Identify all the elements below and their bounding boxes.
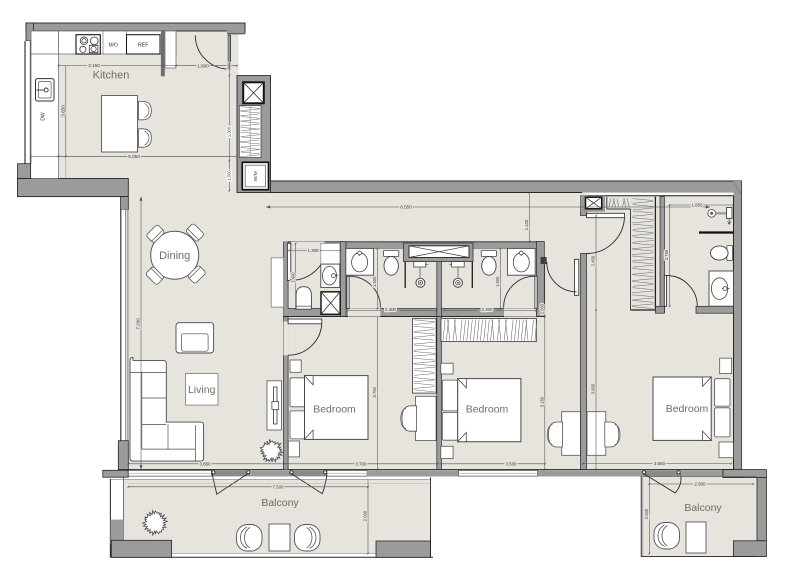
svg-text:3.850: 3.850 [200,461,212,466]
svg-text:M/O: M/O [108,42,118,48]
svg-text:Living: Living [188,384,216,396]
svg-text:5.050: 5.050 [128,154,140,159]
svg-text:1.600: 1.600 [372,276,377,287]
svg-text:3.150: 3.150 [539,396,544,407]
svg-text:3.750: 3.750 [372,386,377,397]
svg-text:DW: DW [41,112,47,121]
svg-text:7.200: 7.200 [136,318,141,330]
svg-text:Kitchen: Kitchen [93,70,130,82]
svg-text:2.000: 2.000 [363,510,368,521]
svg-text:2.300: 2.300 [482,307,494,312]
svg-text:7.500: 7.500 [273,484,285,489]
svg-text:3.650: 3.650 [60,105,65,117]
svg-text:1.300: 1.300 [308,248,320,253]
svg-text:Dining: Dining [159,250,190,262]
svg-text:3.650: 3.650 [654,461,666,466]
svg-text:3.150: 3.150 [88,63,100,68]
svg-text:1,000: 1,000 [227,170,232,181]
svg-text:1.100: 1.100 [524,219,529,230]
svg-text:3.900: 3.900 [591,383,596,394]
svg-text:3.700: 3.700 [356,461,368,466]
svg-text:Bedroom: Bedroom [666,403,709,415]
svg-text:1.800: 1.800 [197,63,209,68]
svg-text:2.450: 2.450 [591,255,596,266]
svg-text:2.000: 2.000 [539,303,544,314]
svg-text:REF: REF [138,43,148,49]
svg-text:Bedroom: Bedroom [466,404,509,416]
svg-text:Balcony: Balcony [684,502,722,514]
svg-text:1,300: 1,300 [227,126,232,137]
svg-text:Balcony: Balcony [261,497,299,509]
svg-text:Bedroom: Bedroom [313,404,356,416]
svg-text:2.900: 2.900 [695,482,707,487]
svg-text:2.300: 2.300 [385,307,397,312]
svg-text:1.850: 1.850 [692,203,704,208]
svg-text:2.000: 2.000 [644,508,649,519]
svg-text:3.500: 3.500 [506,461,518,466]
svg-text:1.400: 1.400 [290,272,295,283]
svg-text:2.750: 2.750 [664,249,669,260]
svg-text:8.550: 8.550 [400,205,412,210]
svg-text:W/M: W/M [253,171,259,181]
svg-text:1.600: 1.600 [495,276,500,287]
